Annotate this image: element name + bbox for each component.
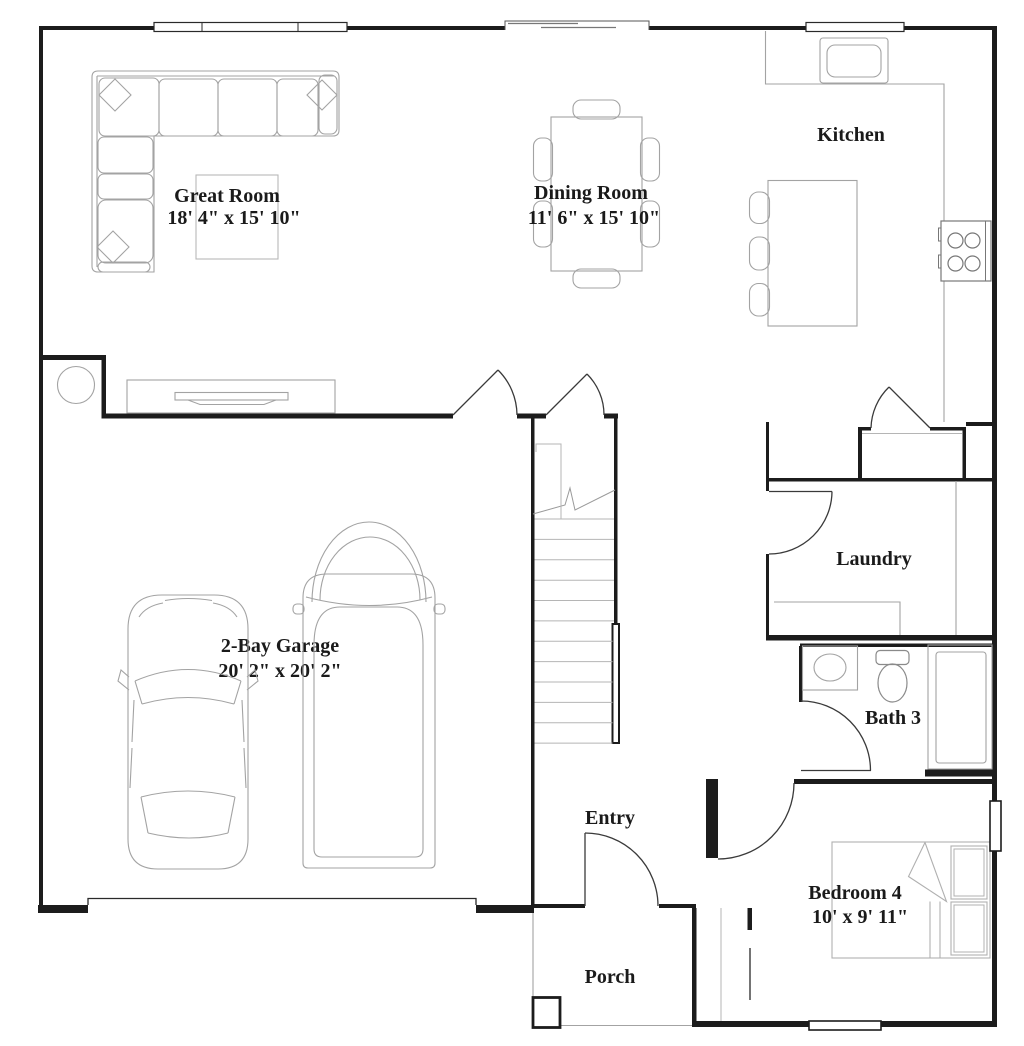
svg-text:Entry: Entry bbox=[585, 807, 635, 829]
svg-text:Porch: Porch bbox=[585, 966, 636, 988]
svg-text:18' 4" x 15' 10": 18' 4" x 15' 10" bbox=[167, 207, 300, 229]
svg-text:Great Room: Great Room bbox=[174, 185, 280, 207]
svg-text:Kitchen: Kitchen bbox=[817, 124, 885, 146]
svg-text:Dining Room: Dining Room bbox=[534, 182, 648, 204]
svg-text:Bedroom 4: Bedroom 4 bbox=[808, 882, 902, 904]
svg-text:Bath 3: Bath 3 bbox=[865, 707, 921, 729]
svg-text:2-Bay Garage: 2-Bay Garage bbox=[221, 635, 339, 657]
svg-text:10' x 9' 11": 10' x 9' 11" bbox=[812, 906, 908, 928]
svg-text:11' 6" x 15' 10": 11' 6" x 15' 10" bbox=[528, 207, 660, 229]
svg-text:Laundry: Laundry bbox=[836, 548, 912, 570]
